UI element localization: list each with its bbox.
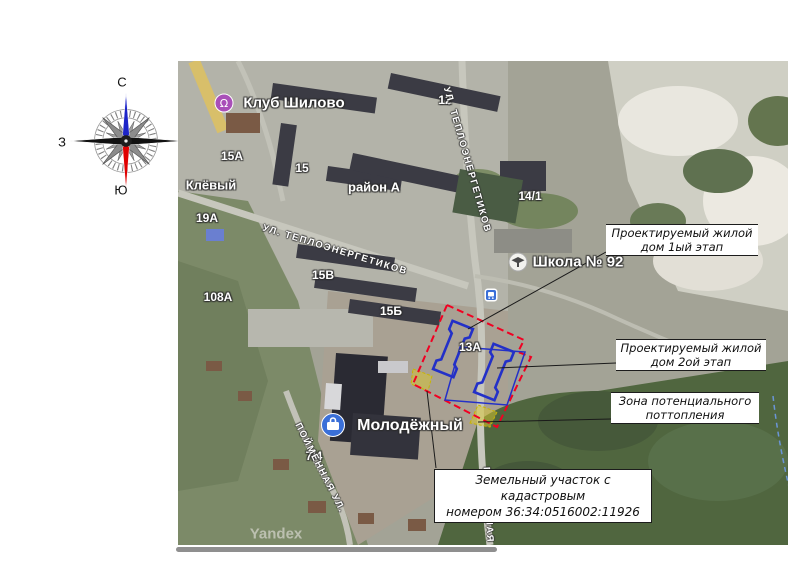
mall-icon[interactable] — [321, 413, 346, 438]
callout-stage1-line2: дом 1ый этап — [608, 240, 756, 254]
school-icon[interactable] — [508, 252, 528, 272]
building-number-14-1: 14/1 — [518, 189, 541, 203]
place-label-club[interactable]: Клуб Шилово — [243, 95, 344, 112]
callout-cadastral-line1: Земельный участок с кадастровым — [438, 472, 648, 504]
callout-flood-line1: Зона потенциального — [613, 394, 757, 408]
building-number-19a: 19А — [196, 211, 218, 225]
building-number-15v: 15В — [312, 268, 334, 282]
building-number-15b: 15Б — [380, 304, 402, 318]
compass-north-needle — [123, 93, 130, 141]
svg-text:Ω: Ω — [220, 97, 228, 110]
building-number-13a: 13А — [459, 340, 481, 354]
building-number-15a: 15А — [221, 149, 243, 163]
building-number-108a: 108А — [204, 290, 233, 304]
callout-stage1-line1: Проектируемый жилой — [608, 226, 756, 240]
callout-stage2-line1: Проектируемый жилой — [618, 341, 764, 355]
callout-cadastral-line2: номером 36:34:0516002:11926 — [438, 504, 648, 520]
callout-stage2: Проектируемый жилой дом 2ой этап — [616, 339, 766, 371]
stream-line — [773, 396, 788, 491]
transport-stop-icon[interactable] — [485, 289, 498, 302]
compass-south-label: Ю — [114, 183, 127, 198]
satellite-map[interactable]: Ω Клуб Шилово — [178, 61, 788, 545]
compass-west-label: З — [58, 135, 66, 150]
parcel-boundary — [413, 305, 531, 427]
area-label-klevy[interactable]: Клёвый — [186, 178, 237, 193]
yandex-watermark: Yandex — [250, 526, 303, 543]
place-label-school[interactable]: Школа № 92 — [533, 254, 624, 271]
callout-stage2-line2: дом 2ой этап — [618, 355, 764, 369]
leader-line-flood — [478, 419, 611, 422]
callout-flood-line2: поттопления — [613, 408, 757, 422]
area-label-district: район А — [348, 180, 400, 195]
place-label-mall[interactable]: Молодёжный — [357, 417, 463, 435]
callout-stage1: Проектируемый жилой дом 1ый этап — [606, 224, 758, 256]
page: С Ю З В — [0, 0, 800, 576]
callout-flood-zone: Зона потенциального поттопления — [611, 392, 759, 424]
club-icon[interactable]: Ω — [214, 93, 234, 113]
callout-cadastral: Земельный участок с кадастровым номером … — [434, 469, 652, 523]
leader-line-stage2 — [497, 363, 616, 368]
compass-north-label: С — [117, 75, 126, 90]
building-number-15: 15 — [295, 161, 308, 175]
horizontal-scrollbar-thumb[interactable] — [176, 547, 497, 552]
